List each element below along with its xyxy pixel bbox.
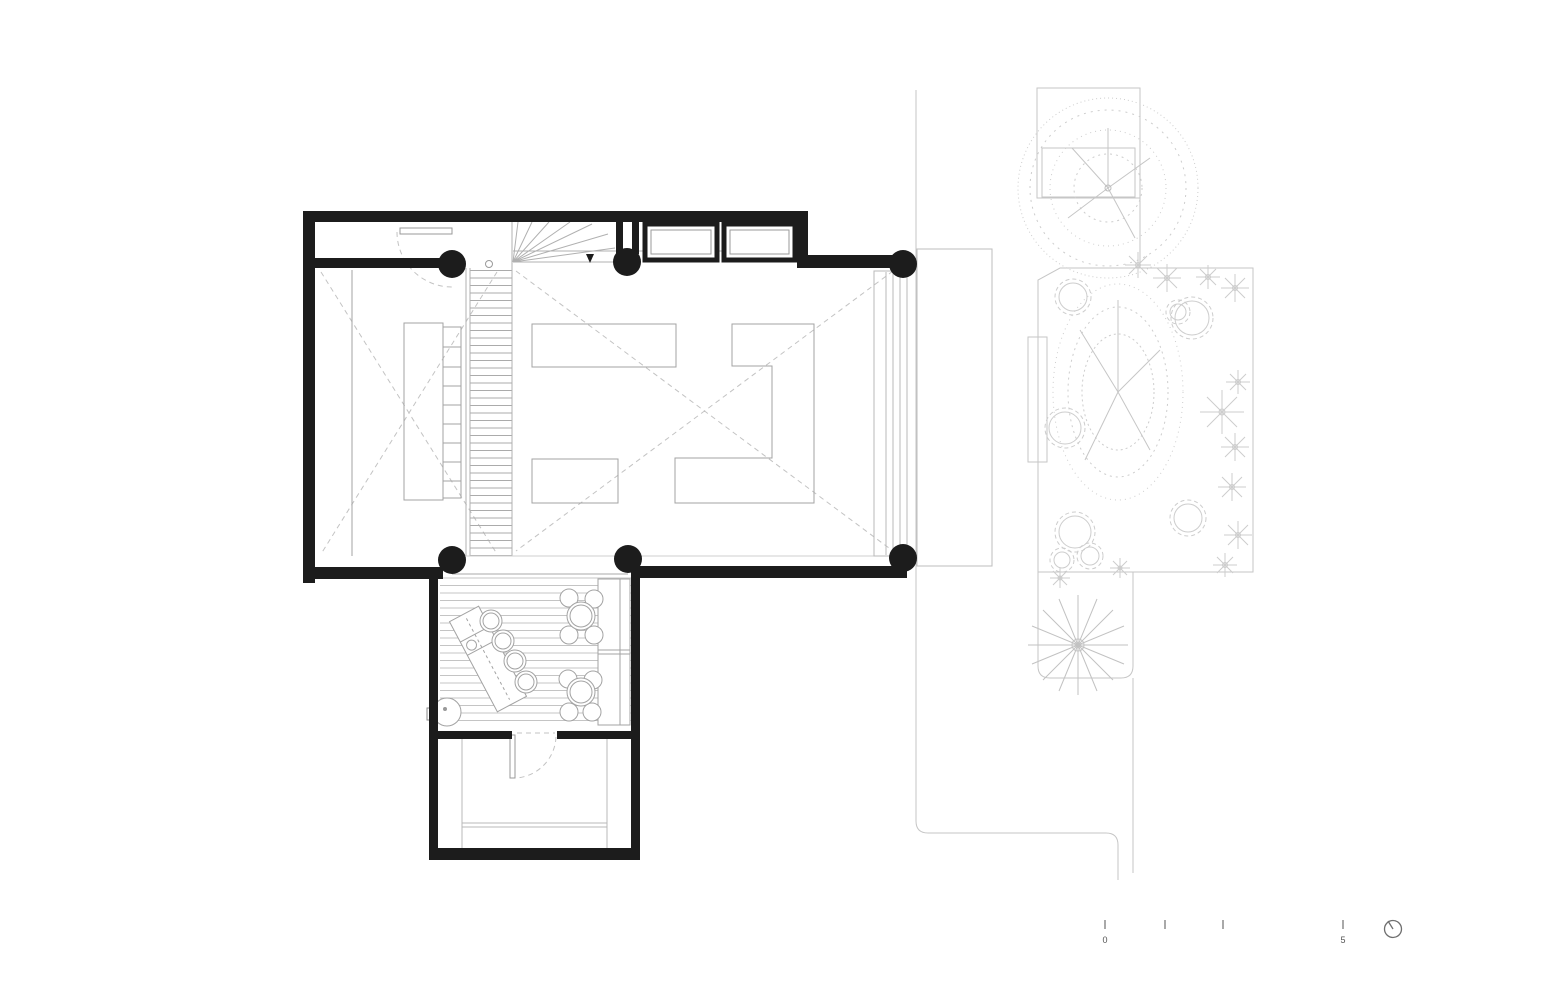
tree-garden-icon: [1053, 284, 1183, 500]
main-room-furniture: [466, 324, 874, 556]
carport-inner-outline: [1042, 148, 1135, 197]
round-table: [567, 602, 595, 630]
column: [438, 250, 466, 278]
wall-lower-top-left: [438, 731, 512, 739]
stair-newel: [486, 261, 493, 268]
wall-bottom-left: [303, 567, 443, 579]
shrub-icons: [1045, 279, 1213, 572]
main-room-x: [516, 271, 893, 551]
window-box-2: [724, 224, 795, 260]
lower-room: [462, 733, 607, 848]
scale-start-label: 0: [1102, 935, 1107, 945]
column: [438, 546, 466, 574]
flower-icons: [1050, 252, 1252, 588]
glass-wall-east: [874, 271, 907, 556]
window-box-1: [645, 224, 717, 260]
column: [613, 248, 641, 276]
scale-bar: 0 5: [1102, 920, 1345, 945]
wall-left: [303, 211, 315, 583]
column: [889, 250, 917, 278]
deck-terrace: [427, 576, 631, 726]
entry-door-leaf: [400, 228, 452, 234]
site-plan: [916, 88, 1253, 880]
stair-treads: [470, 268, 512, 556]
garden-bed-outline: [1038, 268, 1253, 572]
round-table: [567, 678, 595, 706]
wall-deck-right: [631, 567, 640, 860]
shelf-rungs: [443, 347, 461, 481]
column: [889, 544, 917, 572]
table-outline: [532, 324, 676, 367]
patio-outline: [917, 249, 992, 566]
left-room-furniture: [352, 270, 461, 556]
wall-top: [303, 211, 808, 222]
stair-winder-fan: [513, 222, 615, 262]
lower-room-door: [510, 733, 556, 778]
tree-large-icon: [1018, 98, 1198, 278]
wall-entry-interior: [315, 258, 440, 268]
ceiling-dashed-lines: [321, 271, 893, 554]
wall-bottom-right: [637, 566, 907, 578]
door-leaf: [510, 735, 515, 778]
floor-plan-drawing: 0 5: [0, 0, 1545, 1000]
window-boxes: [645, 224, 795, 260]
floor-plan-sheet: 0 5: [0, 0, 1545, 1000]
wall-stub-right: [632, 222, 639, 254]
site-path-line: [916, 90, 1118, 880]
wall-top-right: [797, 255, 903, 268]
cabinet-outline: [532, 459, 618, 503]
wall-step: [797, 222, 808, 260]
door-swing: [516, 737, 556, 778]
north-icon: [1385, 921, 1402, 938]
sofa-u-outline: [675, 324, 814, 503]
carport-roof-outline: [1037, 88, 1140, 198]
interior-linework: [321, 222, 907, 578]
dandelion-icon: [1028, 595, 1128, 695]
column: [614, 545, 642, 573]
exterior-walls: [303, 211, 907, 860]
wall-lower-bottom: [429, 848, 640, 860]
scale-end-label: 5: [1340, 935, 1345, 945]
wall-deck-left: [429, 567, 438, 860]
wall-lower-top-right: [557, 731, 631, 739]
